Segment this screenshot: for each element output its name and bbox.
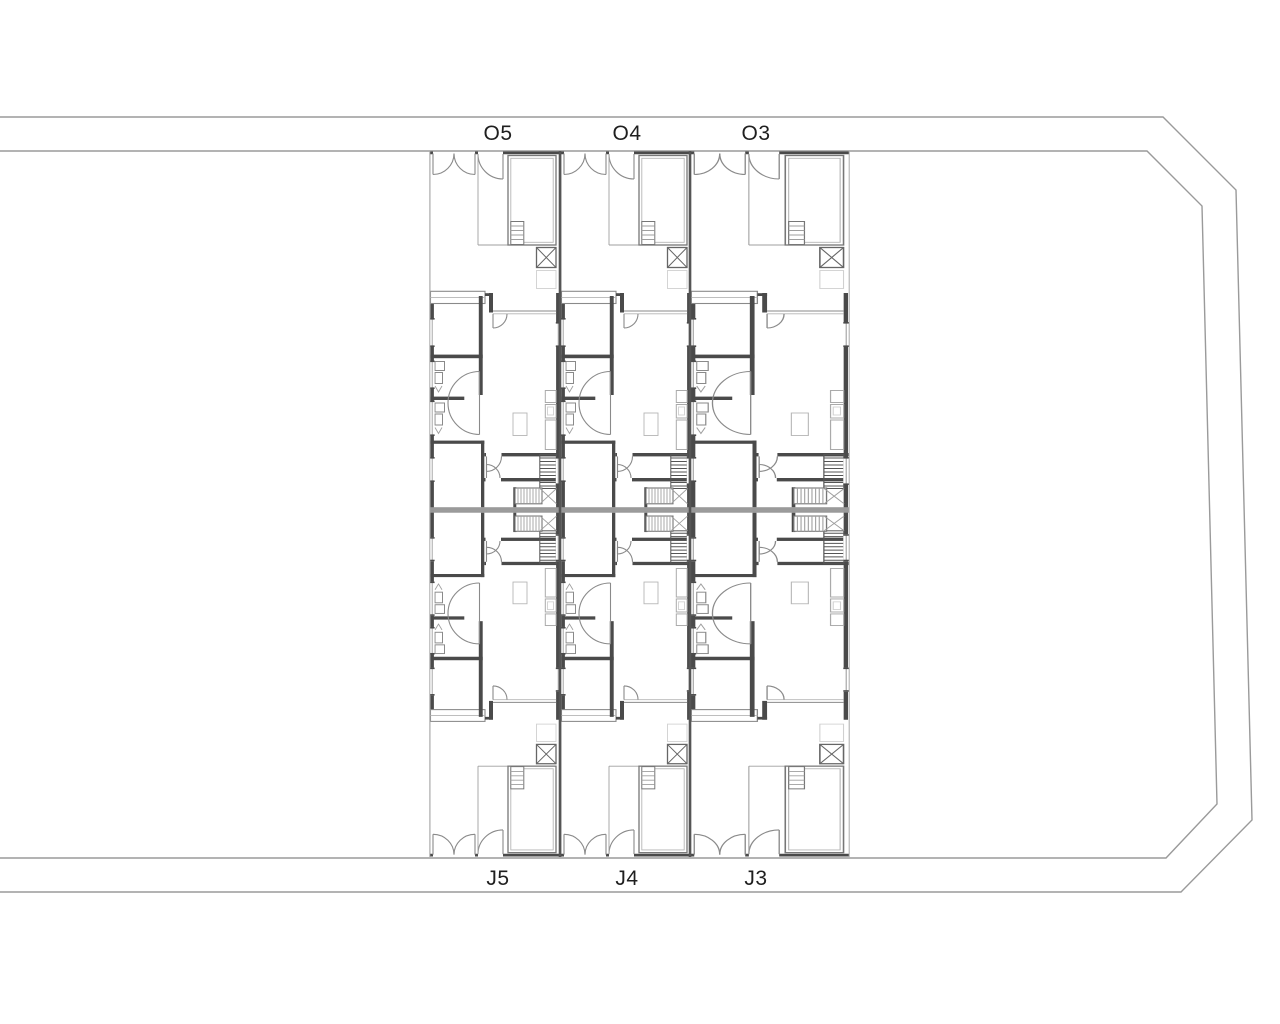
unit-label-O5: O5 bbox=[483, 122, 512, 145]
block-edge-lines bbox=[430, 151, 849, 857]
unit-label-O4: O4 bbox=[612, 122, 641, 145]
unit-J3-plan bbox=[690, 510, 849, 857]
unit-label-J5: J5 bbox=[486, 867, 509, 890]
unit-O3-plan bbox=[690, 151, 849, 510]
unit-label-O3: O3 bbox=[741, 122, 770, 145]
site-boundary-outer bbox=[0, 117, 1252, 892]
unit-label-J4: J4 bbox=[615, 867, 638, 890]
floor-plan-page: O5 O4 O3 J5 J4 J3 bbox=[0, 0, 1280, 1024]
floor-plan-drawing: O5 O4 O3 J5 J4 J3 bbox=[0, 0, 1280, 1024]
unit-O5-plan bbox=[430, 151, 561, 510]
unit-J5-plan bbox=[430, 510, 561, 857]
unit-label-J3: J3 bbox=[744, 867, 767, 890]
site-boundary-inner bbox=[0, 151, 1217, 858]
unit-J4-plan bbox=[561, 510, 692, 857]
unit-O4-plan bbox=[561, 151, 692, 510]
